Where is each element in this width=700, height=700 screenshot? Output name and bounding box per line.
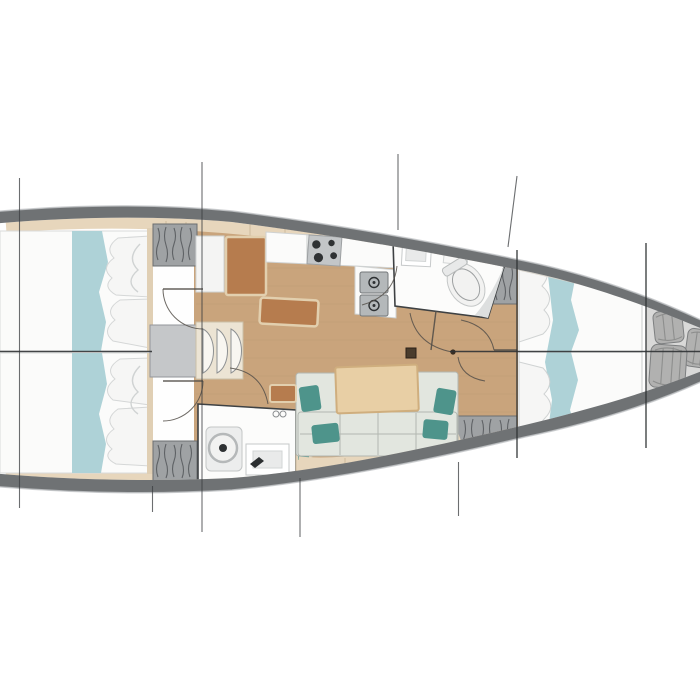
- aft-stbd-pillow-1: [107, 358, 150, 405]
- galley-sink-1: [360, 272, 388, 293]
- stove: [307, 235, 342, 266]
- aft-head-sink: [246, 444, 289, 475]
- galley-island: [259, 298, 318, 327]
- aft-port-pillow-2: [107, 299, 150, 348]
- interior-content: [0, 221, 700, 486]
- sofa-pillow-1: [298, 385, 321, 413]
- sofa-pillow-4: [433, 387, 457, 415]
- nav-station: [196, 236, 266, 295]
- side-table: [270, 385, 296, 402]
- companionway: [150, 322, 243, 379]
- hanging-locker-aft-top: [153, 224, 197, 266]
- sofa-pillow-3: [422, 419, 449, 440]
- aft-toilet: [206, 427, 242, 471]
- floorplan-svg: [0, 0, 700, 700]
- fwd-bulkhead-upper: [508, 176, 517, 247]
- galley-sink-2: [360, 295, 388, 316]
- mast-step: [406, 348, 416, 358]
- aft-cabin-port: [0, 228, 153, 351]
- aft-port-pillow-1: [106, 236, 150, 297]
- sofa-pillow-2: [311, 423, 340, 445]
- nav-seat-cabinet: [196, 236, 224, 292]
- engine-box: [150, 325, 196, 377]
- chart-table: [226, 237, 266, 295]
- aft-stbd-pillow-2: [106, 407, 150, 466]
- hanging-locker-aft-bottom: [153, 441, 197, 482]
- yacht-floorplan-image: [0, 0, 700, 700]
- salon-table: [335, 365, 419, 414]
- aft-cabin-starboard: [0, 353, 153, 474]
